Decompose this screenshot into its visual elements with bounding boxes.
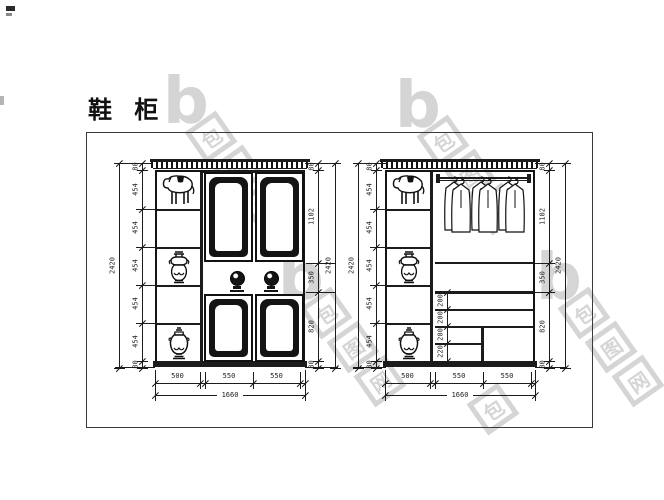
extension-line — [370, 247, 387, 248]
dim-line — [358, 163, 359, 368]
extension-line — [531, 372, 532, 385]
extension-line — [535, 370, 536, 399]
extension-line — [136, 285, 157, 286]
rod-bracket — [436, 174, 440, 183]
extension-line — [370, 323, 387, 324]
shelf-line — [387, 209, 430, 211]
extension-line — [136, 247, 157, 248]
dim-label: 2420 — [348, 240, 357, 290]
dim-line — [335, 163, 336, 368]
dim-line — [142, 163, 143, 368]
dim-label: 1660 — [447, 391, 473, 400]
shelf-line — [387, 323, 430, 325]
extension-line — [370, 285, 387, 286]
dim-label: 550 — [252, 372, 302, 381]
dim-label: 1102 — [539, 191, 548, 241]
extension-line — [483, 372, 484, 385]
interior-divider — [481, 326, 484, 362]
page-title: 鞋 柜 — [88, 90, 165, 125]
extension-line — [385, 370, 386, 399]
extension-line — [155, 370, 156, 399]
dim-line — [385, 383, 535, 384]
extension-line — [305, 163, 338, 164]
clothes-hanger-icon — [496, 176, 526, 236]
shelf-line — [157, 285, 200, 287]
base-plinth — [383, 361, 537, 367]
dim-line — [155, 383, 305, 384]
shelf-column-partition — [200, 172, 203, 361]
cad-drawing-canvas: b 包 图 网 b 包 图 网 b 包 图 网 b 包 图 网 包 鞋 柜 — [0, 0, 664, 500]
dim-label: 2420 — [325, 240, 334, 290]
dim-label: 80 — [366, 339, 375, 389]
dim-label: 550 — [204, 372, 254, 381]
pot-icon — [396, 327, 422, 361]
extension-line — [136, 209, 157, 210]
interior-shelf — [435, 262, 533, 264]
dim-label: 550 — [434, 372, 484, 381]
shelf-line — [387, 285, 430, 287]
dim-line — [119, 163, 120, 368]
cornice-bottom-line — [153, 168, 307, 169]
extension-line — [535, 163, 567, 164]
extension-line — [306, 263, 336, 264]
extension-line — [535, 367, 567, 368]
dim-label: 1102 — [308, 191, 317, 241]
shelf-line — [387, 247, 430, 249]
door-upper-left — [204, 172, 253, 262]
dim-label: 500 — [153, 372, 203, 381]
dim-label: 550 — [482, 372, 532, 381]
extension-line — [253, 372, 254, 385]
extension-line — [205, 372, 206, 385]
extension-line — [305, 367, 338, 368]
shelf-line — [157, 209, 200, 211]
cornice-bottom-line — [383, 168, 537, 169]
dim-label: 220 — [437, 327, 446, 377]
dim-label: 80 — [308, 339, 317, 389]
extension-line — [430, 372, 431, 385]
dim-line — [318, 163, 319, 368]
door-lower-left — [204, 294, 253, 362]
extension-line — [136, 323, 157, 324]
dim-label: 350 — [539, 252, 548, 302]
pot-icon — [166, 327, 192, 361]
dim-label: 80 — [539, 141, 548, 191]
extension-line — [115, 163, 152, 164]
horse-figurine-icon — [159, 174, 197, 208]
clothes-hanger-icon — [442, 176, 472, 236]
dim-line — [565, 163, 566, 368]
finial-knob-right — [263, 271, 279, 292]
shelf-line — [157, 323, 200, 325]
vase-icon — [396, 251, 422, 285]
dim-label: 80 — [132, 339, 141, 389]
dim-label: 350 — [308, 252, 317, 302]
rod-bracket — [527, 174, 531, 183]
dim-label: 2420 — [555, 240, 564, 290]
extension-line — [115, 367, 155, 368]
elevation-drawing: 鞋 柜 — [0, 0, 664, 500]
dim-label: 80 — [539, 339, 548, 389]
extension-line — [353, 163, 386, 164]
vase-icon — [166, 251, 192, 285]
shelf-column-partition — [430, 172, 433, 361]
extension-line — [353, 367, 386, 368]
extension-line — [370, 209, 387, 210]
door-upper-right — [255, 172, 304, 262]
extension-line — [200, 372, 201, 385]
clothes-hanger-icon — [469, 176, 499, 236]
extension-line — [535, 292, 550, 293]
extension-line — [305, 370, 306, 399]
dim-line — [376, 163, 377, 368]
horse-figurine-icon — [389, 174, 427, 208]
extension-line — [535, 263, 550, 264]
dim-label: 1660 — [217, 391, 243, 400]
extension-line — [300, 372, 301, 385]
dim-label: 500 — [383, 372, 433, 381]
dim-line — [549, 163, 550, 368]
door-lower-right — [255, 294, 304, 362]
dim-label: 80 — [308, 141, 317, 191]
extension-line — [435, 372, 436, 385]
extension-line — [306, 292, 336, 293]
dim-label: 2420 — [109, 240, 118, 290]
finial-knob-left — [229, 271, 245, 292]
shelf-line — [157, 247, 200, 249]
